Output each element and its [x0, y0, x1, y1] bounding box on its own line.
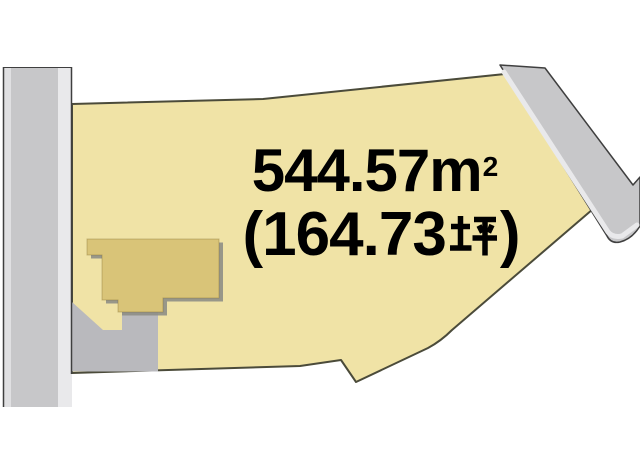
area-tsubo-suffix: )	[500, 200, 520, 269]
area-m2-unit: m	[429, 137, 481, 204]
tsubo-kanji-glyph	[449, 209, 497, 257]
area-tsubo-prefix: (164.73	[243, 200, 446, 269]
area-label-tsubo: (164.73 )	[221, 204, 541, 266]
plot-diagram: 544.57m2 (164.73 )	[0, 0, 640, 455]
area-m2-value: 544.57	[252, 137, 430, 204]
area-label-m2: 544.57m2	[230, 141, 520, 201]
area-m2-exponent: 2	[483, 150, 499, 182]
left-road	[3, 67, 72, 407]
